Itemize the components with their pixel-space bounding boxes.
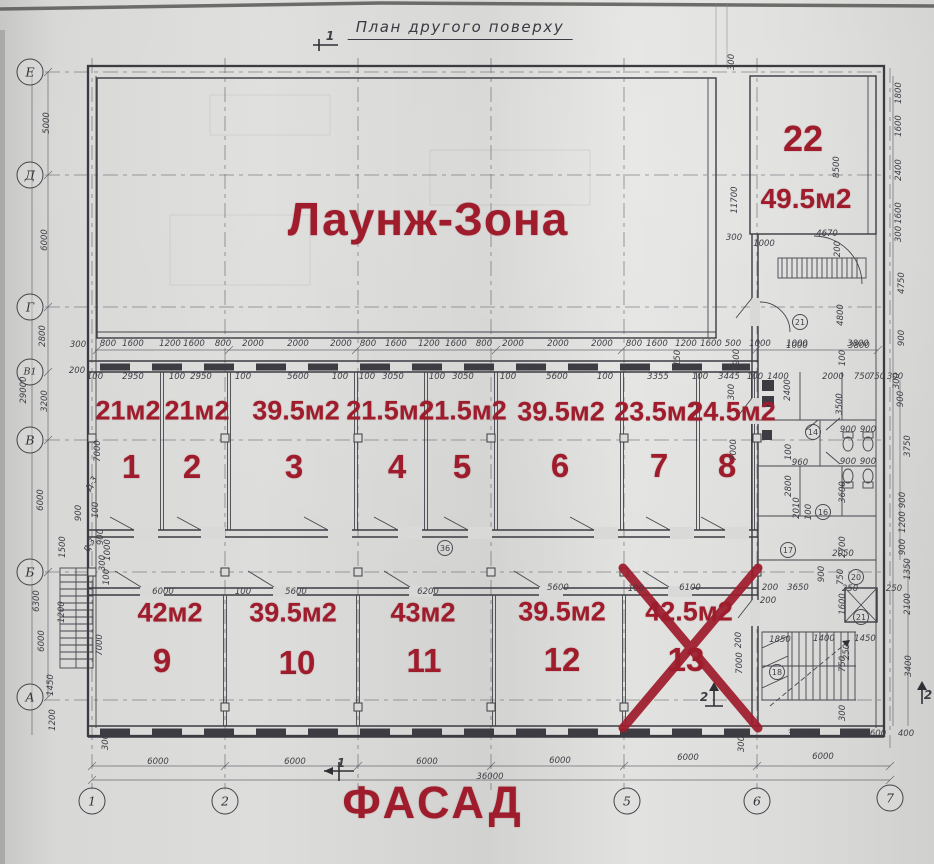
- callout-bubble: 17: [780, 542, 796, 558]
- dimension-label: 1400: [813, 634, 835, 644]
- dimension-label: 2000: [242, 339, 264, 349]
- dimension-label: 100: [628, 584, 644, 594]
- dimension-label: 1600: [646, 339, 668, 349]
- dimension-label: 1500: [58, 536, 68, 558]
- dimension-label: 750: [838, 656, 848, 672]
- dimension-label: 36000: [476, 772, 503, 782]
- dimension-label: 300: [70, 340, 86, 350]
- dimension-label: 200: [833, 241, 843, 257]
- room-9-number: 9: [153, 642, 171, 680]
- axis-col-1: 1: [79, 788, 106, 815]
- dimension-label: 200: [762, 583, 778, 593]
- dimension-label: 1: [337, 756, 345, 770]
- dimension-label: 600: [870, 729, 886, 739]
- dimension-label: 900: [840, 425, 856, 435]
- dimension-label: 5000: [42, 112, 52, 134]
- room-3-number: 3: [285, 448, 303, 486]
- dimension-label: 1600: [840, 729, 862, 739]
- dimension-label: 2000: [502, 339, 524, 349]
- room-9-area: 42м2: [137, 598, 202, 629]
- dimension-label: 800: [215, 339, 231, 349]
- dimension-label: 100: [784, 444, 794, 460]
- dimension-label: 2950: [122, 372, 144, 382]
- dimension-label: 3400: [787, 729, 809, 739]
- dimension-label: 400: [898, 729, 914, 739]
- callout-bubble: 21: [853, 609, 869, 625]
- lower-door-leaves: [115, 571, 669, 587]
- dimension-label: 29000: [19, 376, 29, 403]
- dimension-label: 1850: [769, 635, 791, 645]
- dimension-label: 2000: [330, 339, 352, 349]
- dimension-label: 1200: [48, 709, 58, 731]
- dimension-label: 2950: [190, 372, 212, 382]
- dimension-label: 300: [894, 226, 904, 242]
- axis-row-b: Б: [17, 559, 44, 586]
- room-6-number: 6: [551, 447, 569, 485]
- dimension-label: 1600: [838, 593, 848, 615]
- dimension-label: 750: [854, 372, 870, 382]
- callout-bubble: 18: [769, 664, 785, 680]
- axis-row-a: А: [17, 684, 44, 711]
- dimension-label: 1600: [894, 202, 904, 224]
- room-5-number: 5: [453, 448, 471, 486]
- room-11-number: 11: [407, 642, 442, 680]
- dimension-label: 300: [101, 734, 111, 750]
- dimension-label: 300: [892, 373, 902, 389]
- axis-row-e: Е: [17, 59, 44, 86]
- axis-col-2: 2: [212, 788, 239, 815]
- dimension-label: 100: [235, 372, 251, 382]
- room-12-number: 12: [544, 641, 581, 679]
- callout-bubble: 20: [848, 569, 864, 585]
- dimension-label: 3650: [787, 583, 809, 593]
- room-10-area: 39.5м2: [249, 598, 337, 629]
- facade-label: ФАСАД: [342, 777, 523, 829]
- room-8-area: 24.5м2: [688, 397, 776, 428]
- dimension-label: 300: [726, 233, 742, 243]
- dimension-label: 1000: [786, 341, 808, 351]
- dimension-label: 6000: [40, 229, 50, 251]
- dimension-label: 3600: [838, 481, 848, 503]
- room-3-area: 39.5м2: [252, 396, 340, 427]
- dimension-label: 800: [100, 339, 116, 349]
- room-13-area: 42.5м2: [645, 597, 733, 628]
- dimension-label: 100: [91, 502, 101, 518]
- dimension-label: 900: [840, 457, 856, 467]
- dimension-label: 800: [360, 339, 376, 349]
- room-2-area: 21м2: [164, 396, 229, 427]
- room-7-number: 7: [650, 447, 668, 485]
- dimension-label: 960: [792, 458, 808, 468]
- dimension-label: 2000: [547, 339, 569, 349]
- dimension-label: 900: [860, 425, 876, 435]
- dimension-label: 7000: [735, 652, 745, 674]
- dimension-label: 1350: [903, 558, 913, 580]
- dimension-label: 2800: [784, 475, 794, 497]
- dimension-label: 1600: [700, 339, 722, 349]
- upper-corridor-wall: [88, 530, 758, 537]
- axis-row-g: Г: [17, 294, 44, 321]
- dimension-label: 1450: [46, 674, 56, 696]
- dimension-label: 800: [476, 339, 492, 349]
- axis-col-5: 5: [614, 788, 641, 815]
- dimension-label: 100: [597, 372, 613, 382]
- room-12-area: 39.5м2: [518, 597, 606, 628]
- dimension-label: 6000: [812, 752, 834, 762]
- callout-bubble: 16: [815, 504, 831, 520]
- section-arrow-1: [324, 767, 333, 775]
- dimension-label: 2000: [822, 372, 844, 382]
- dimension-label: 2000: [591, 339, 613, 349]
- entry-door-arcs: [760, 236, 862, 332]
- paper-fold: [716, 4, 727, 66]
- dimension-label: 6200: [417, 587, 439, 597]
- room-2-number: 2: [183, 448, 201, 486]
- dimension-label: 900: [898, 492, 908, 508]
- dimension-label: 100: [500, 372, 516, 382]
- dimension-label: 900: [817, 566, 827, 582]
- dimension-label: 7000: [93, 440, 103, 462]
- dimension-label: 300: [737, 736, 747, 752]
- dimension-label: 2400: [894, 159, 904, 181]
- dimension-label: 900: [860, 457, 876, 467]
- scan-shadow: [0, 30, 5, 864]
- lounge-zone-label: Лаунж-Зона: [288, 192, 569, 246]
- dimension-label: 100: [692, 372, 708, 382]
- dimension-label: 5600: [546, 372, 568, 382]
- dimension-label: 100: [332, 372, 348, 382]
- dimension-label: 4800: [836, 304, 846, 326]
- dimension-label: 4670: [816, 229, 838, 239]
- dimension-label: 2: [924, 688, 932, 702]
- entry-shelf-hatch: [782, 258, 857, 278]
- dimension-label: 1600: [894, 115, 904, 137]
- dimension-label: 5600: [285, 587, 307, 597]
- dimension-label: 100: [359, 372, 375, 382]
- dimension-label: 200: [734, 632, 744, 648]
- faint-furniture: [170, 95, 590, 285]
- callout-bubble: 36: [437, 540, 453, 556]
- dimension-label: 3800: [848, 341, 870, 351]
- dimension-label: 6100: [679, 583, 701, 593]
- dimension-label: 250: [886, 584, 902, 594]
- dimension-label: 100: [838, 350, 848, 366]
- room-13-number: 13: [668, 641, 705, 679]
- dimension-label: 3050: [452, 372, 474, 382]
- dimension-label: 3500: [835, 393, 845, 415]
- dimension-label: 750: [869, 372, 885, 382]
- dimension-label: 1450: [854, 634, 876, 644]
- dimension-label: 5600: [547, 583, 569, 593]
- dimension-label: 6300: [32, 590, 42, 612]
- dimension-label: 900: [897, 330, 907, 346]
- dimension-label: 300: [727, 54, 737, 70]
- room-1-number: 1: [122, 448, 140, 486]
- dimension-label: 1200: [675, 339, 697, 349]
- dimension-label: 150: [673, 350, 683, 366]
- dimension-label: 7000: [729, 439, 739, 461]
- dimension-label: 900: [732, 349, 742, 365]
- dimension-label: 3050: [382, 372, 404, 382]
- dimension-label: 300: [838, 705, 848, 721]
- room-10-number: 10: [279, 644, 316, 682]
- dimension-label: 200: [69, 366, 85, 376]
- dimension-label: 1200: [57, 601, 67, 623]
- dimension-label: 3355: [647, 372, 669, 382]
- dimension-label: 100: [102, 569, 112, 585]
- dimension-label: 1600: [183, 339, 205, 349]
- dimension-label: 4750: [897, 272, 907, 294]
- axis-row-d: Д: [17, 162, 44, 189]
- dimension-label: 2: [700, 690, 708, 704]
- dimension-label: 7000: [95, 634, 105, 656]
- wall-segments-b1: [100, 364, 750, 371]
- dimension-label: 100: [429, 372, 445, 382]
- dimension-label: 2050: [832, 549, 854, 559]
- dimension-label: 100: [169, 372, 185, 382]
- axis-col-6: 6: [744, 788, 771, 815]
- dimension-label: 300: [727, 384, 737, 400]
- dimension-label: 1600: [385, 339, 407, 349]
- dimension-label: 3750: [903, 435, 913, 457]
- dimension-label: 3445: [718, 372, 740, 382]
- callout-bubble: 14: [805, 424, 821, 440]
- dimension-label: 750: [836, 569, 846, 585]
- dimension-label: 1000: [749, 339, 771, 349]
- room-4-number: 4: [388, 448, 406, 486]
- dimension-label: 100: [235, 587, 251, 597]
- room-6-area: 39.5м2: [517, 397, 605, 428]
- dimension-label: 6000: [549, 756, 571, 766]
- dimension-label: 11700: [730, 186, 740, 213]
- dimension-label: 5600: [287, 372, 309, 382]
- dimension-label: 3400: [904, 655, 914, 677]
- dimension-label: 6000: [147, 757, 169, 767]
- dimension-label: 1200: [159, 339, 181, 349]
- dimension-label: 500: [725, 339, 741, 349]
- scan-edge: [0, 3, 934, 9]
- dimension-label: 3200: [40, 390, 50, 412]
- dimension-label: 1800: [894, 82, 904, 104]
- dimension-label: 900: [896, 391, 906, 407]
- dimension-label: 6000: [284, 757, 306, 767]
- axis-col-7: 7: [877, 785, 904, 812]
- dimension-label: 2000: [287, 339, 309, 349]
- dimension-label: 100: [804, 504, 814, 520]
- room-22-number: 22: [783, 118, 823, 160]
- dimension-label: 6000: [152, 587, 174, 597]
- dimension-label: 2400: [783, 379, 793, 401]
- dimension-label: 6000: [677, 753, 699, 763]
- dimension-label: 1000: [753, 239, 775, 249]
- dimension-label: 100: [747, 372, 763, 382]
- dimension-label: 200: [760, 596, 776, 606]
- dimension-label: 6000: [37, 630, 47, 652]
- dimension-label: 800: [626, 339, 642, 349]
- dimension-label: 1600: [445, 339, 467, 349]
- room-22-area: 49.5м2: [761, 183, 852, 215]
- dimension-label: 1200: [898, 511, 908, 533]
- callout-bubble: 21: [792, 314, 808, 330]
- room-1-area: 21м2: [95, 396, 160, 427]
- dimension-label: 100: [87, 372, 103, 382]
- drawing-title: План другого поверху: [348, 18, 573, 40]
- dimension-label: 900: [74, 505, 84, 521]
- dimension-label: 1600: [122, 339, 144, 349]
- dimension-label: 8500: [832, 156, 842, 178]
- dimension-label: 6000: [36, 489, 46, 511]
- dimension-label: 2100: [903, 593, 913, 615]
- dimension-label: 6000: [416, 757, 438, 767]
- room-11-area: 43м2: [390, 598, 455, 629]
- dimension-label: 900: [898, 539, 908, 555]
- dimension-label: 1200: [418, 339, 440, 349]
- axis-row-v: В: [17, 427, 44, 454]
- room-5-area: 21.5м2: [419, 396, 507, 427]
- dimension-label: 1: [326, 29, 334, 43]
- dimension-label: 2800: [38, 325, 48, 347]
- floor-plan-scan: План другого поверху Лаунж-Зона ФАСАД 21…: [0, 0, 934, 864]
- dimension-label: 2010: [792, 497, 802, 519]
